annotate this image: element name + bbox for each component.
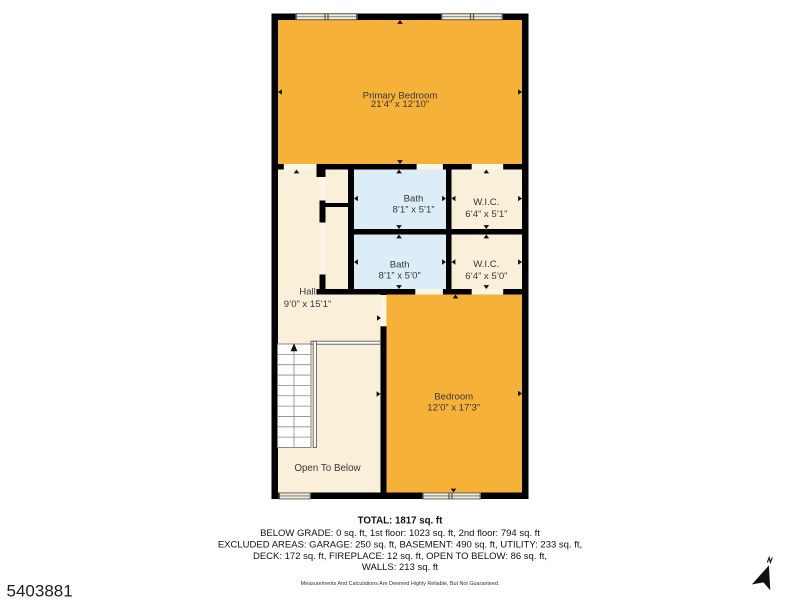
svg-text:8’1” x 5’1”: 8’1” x 5’1” [392,204,434,215]
svg-text:Hall: Hall [299,287,316,298]
svg-text:21’4” x 12’10”: 21’4” x 12’10” [371,99,429,110]
svg-text:BELOW GRADE: 0 sq. ft, 1st flo: BELOW GRADE: 0 sq. ft, 1st floor: 1023 s… [260,528,540,539]
svg-text:WALLS: 213 sq. ft: WALLS: 213 sq. ft [362,562,439,573]
svg-text:9’0” x 15’1”: 9’0” x 15’1” [284,299,331,310]
svg-text:5403881: 5403881 [7,582,73,601]
svg-text:Open To Below: Open To Below [294,463,361,474]
svg-text:Bath: Bath [404,193,424,204]
svg-text:Measurements And Calculations: Measurements And Calculations Are Deemed… [301,581,500,587]
svg-text:W.I.C.: W.I.C. [473,259,499,270]
svg-text:DECK: 172 sq. ft, FIREPLACE: 1: DECK: 172 sq. ft, FIREPLACE: 12 sq. ft, … [253,551,547,562]
svg-text:6’4” x 5’0”: 6’4” x 5’0” [465,271,507,282]
svg-text:W.I.C.: W.I.C. [473,197,499,208]
svg-text:6’4” x 5’1”: 6’4” x 5’1” [465,209,507,220]
svg-text:12’0” x 17’3”: 12’0” x 17’3” [427,403,480,414]
svg-text:8’1” x 5’0”: 8’1” x 5’0” [379,271,421,282]
svg-text:EXCLUDED AREAS: GARAGE: 250 sq: EXCLUDED AREAS: GARAGE: 250 sq. ft, BASE… [218,539,582,550]
svg-text:Bath: Bath [390,259,410,270]
svg-text:TOTAL: 1817 sq. ft: TOTAL: 1817 sq. ft [358,516,443,527]
svg-text:Bedroom: Bedroom [434,391,473,402]
